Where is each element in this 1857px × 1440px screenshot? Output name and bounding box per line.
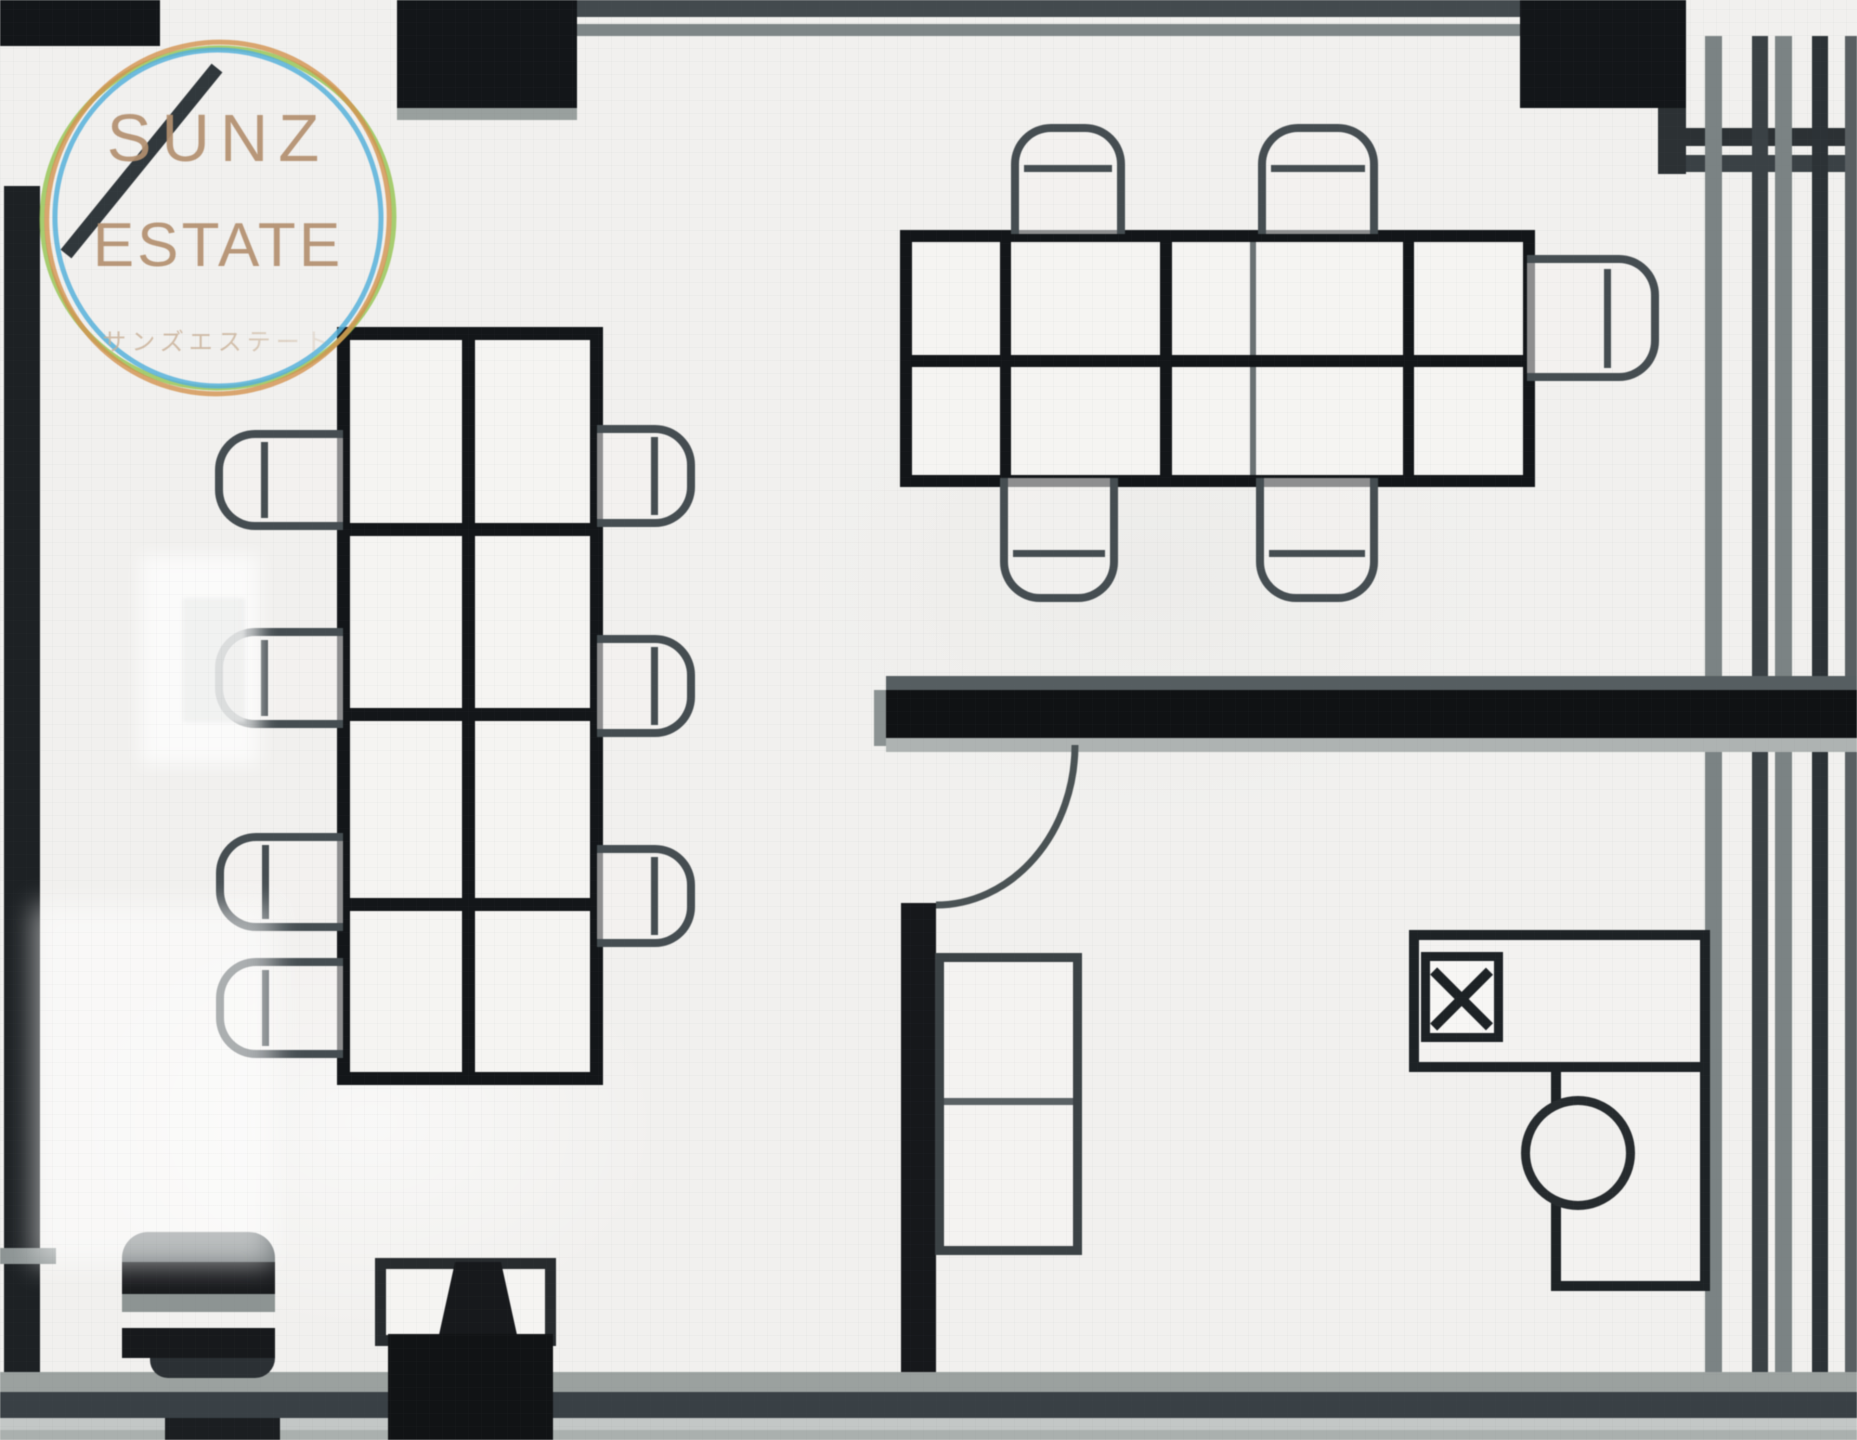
floorplan-canvas: SUNZ ESTATE サンズエステート [0,0,1857,1440]
logo-text-line2: ESTATE [28,210,408,281]
logo-text-katakana: サンズエステート [58,322,378,357]
plan-layer: SUNZ ESTATE サンズエステート [0,0,1857,1440]
door-swing-arc [936,745,1075,905]
logo-text-line1: SUNZ [58,100,378,177]
